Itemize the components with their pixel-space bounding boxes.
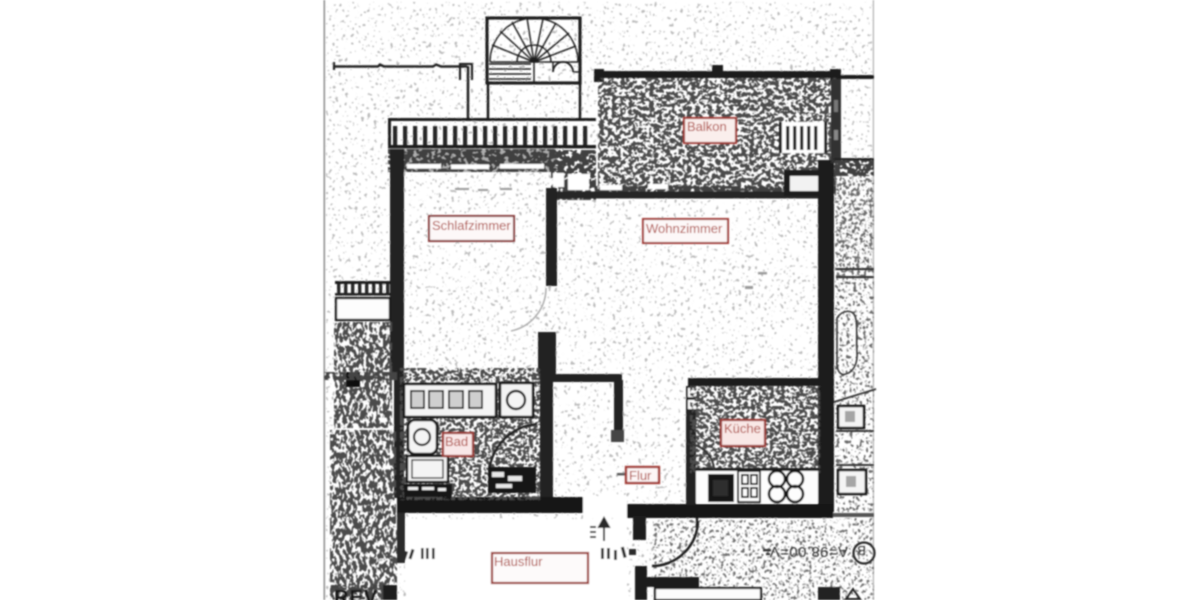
svg-text:Bad: Bad bbox=[445, 434, 468, 449]
svg-text:Balkon: Balkon bbox=[687, 119, 727, 134]
svg-text:A=98.00=V: A=98.00=V bbox=[769, 543, 848, 560]
svg-text:Küche: Küche bbox=[724, 421, 761, 436]
svg-text:Wohnzimmer: Wohnzimmer bbox=[646, 221, 723, 236]
svg-text:B: B bbox=[857, 543, 866, 558]
svg-text:REV: REV bbox=[334, 587, 378, 600]
svg-text:Flur: Flur bbox=[629, 468, 652, 483]
svg-text:Hausflur: Hausflur bbox=[494, 554, 543, 569]
svg-text:Schlafzimmer: Schlafzimmer bbox=[432, 218, 511, 233]
